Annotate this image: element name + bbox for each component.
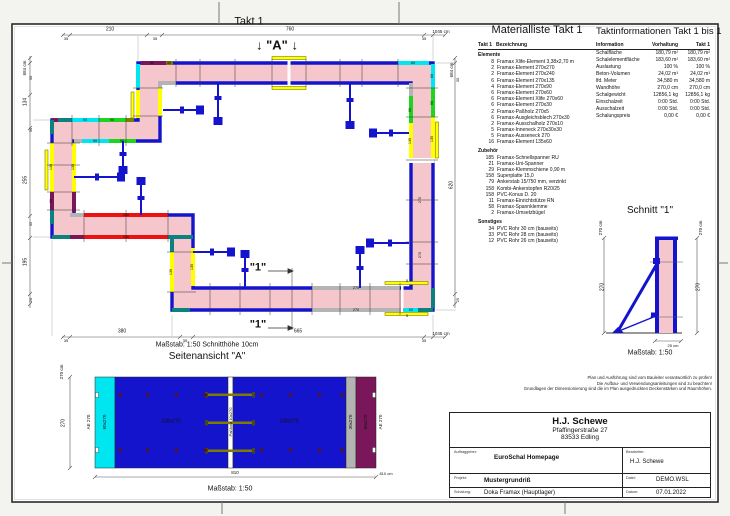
project-value: Mustergrundriß	[484, 477, 531, 484]
elevation-label: 810	[231, 471, 239, 476]
element-size-label: 270	[353, 309, 359, 313]
material-list-col-desc: Bezeichnung	[496, 42, 527, 48]
elevation-label: 30x270	[349, 415, 354, 430]
dimension-label: 35	[64, 37, 68, 41]
takt-info-title: Taktinformationen Takt 1 bis 1	[596, 26, 710, 37]
element-size-label: 135	[170, 269, 174, 275]
cut-marker-1-bottom: "1"	[250, 320, 267, 331]
dimension-label: 30	[29, 76, 33, 80]
element-size-label: 135	[431, 136, 435, 142]
takt-info-row: lfd. Meter34,580 m34,580 m	[596, 78, 710, 85]
element-size-label: 270	[353, 287, 359, 291]
plan-title: Takt 1	[234, 17, 263, 28]
side-view-title: Seitenansicht "A"	[169, 352, 246, 362]
dimension-label: 684 cm	[450, 63, 455, 78]
takt-info-row: Einschalzeit0:00 Std.0:00 Std.	[596, 99, 710, 106]
element-size-label: 135	[72, 164, 76, 170]
element-size-label: 135	[50, 164, 54, 170]
editor-label: Bearbeiter:	[626, 450, 645, 454]
section-dim-label: 270	[601, 283, 606, 291]
date-label: Datum:	[626, 490, 638, 494]
takt-info-row: Schalgewicht12856,1 kg12856,1 kg	[596, 92, 710, 99]
takt-info-header: Information Vorhaltung Takt 1	[596, 42, 710, 50]
dimension-label: 1045 cm	[432, 332, 449, 337]
element-size-label: 270	[419, 197, 423, 203]
element-size-label: 60	[431, 74, 435, 78]
dimension-label: 665	[294, 330, 302, 335]
dimension-label: 380	[118, 330, 126, 335]
plan-scale-note: Maßstab: 1:50 Schnitthöhe 10cm	[156, 342, 259, 349]
dimension-label: 760	[286, 28, 294, 33]
dimension-label: 684 cm	[23, 61, 28, 76]
element-size-label: 135	[191, 264, 195, 270]
date-value: 07.01.2022	[656, 490, 686, 496]
project-label: Projekt:	[454, 476, 467, 480]
dimension-label: 35	[422, 339, 426, 343]
client-label: Auftraggeber:	[454, 450, 477, 454]
element-size-label: 240	[123, 236, 129, 240]
formwork-value: Doka Framax (Hauptlager)	[484, 490, 555, 496]
dimension-label: 195	[24, 258, 29, 266]
editor-value: H.J. Schewe	[630, 459, 664, 465]
company-street: Pfaffingerstraße 27	[450, 427, 710, 434]
dimension-label: 20	[29, 298, 33, 302]
elevation-label: Paßholz 10x270	[229, 408, 233, 437]
material-list-header: Takt 1 Bezeichnung	[478, 42, 596, 50]
title-block: H.J. Schewe Pfaffingerstraße 27 83533 Ed…	[449, 412, 711, 498]
dimension-label: 35	[29, 222, 33, 226]
takt-info-row: Beton-Volumen24,02 m³24,02 m³	[596, 71, 710, 78]
element-size-label: 60	[50, 199, 54, 203]
cut-marker-1-top: "1"	[250, 263, 267, 274]
elevation-label: 270 cm	[60, 365, 65, 380]
dimension-label: 210	[106, 28, 114, 33]
elevation-label: 810 cm	[379, 472, 392, 476]
element-size-label: 135	[409, 138, 413, 144]
element-size-label: 30	[167, 62, 171, 66]
takt-info-col-vorhaltung: Vorhaltung	[642, 42, 678, 49]
element-size-label: 90	[93, 140, 97, 144]
takt-info-row: Schalfläche180,79 m²180,79 m²	[596, 50, 710, 57]
element-size-label: 5	[406, 314, 408, 318]
material-list-title: Materialliste Takt 1	[478, 24, 596, 36]
dimension-label: 255	[24, 176, 29, 184]
takt-info-row: Schalelementfläche183,60 m²183,60 m²	[596, 57, 710, 64]
elevation-label: 338x270	[161, 420, 180, 425]
section-dim-label: 270 cm	[699, 221, 704, 236]
dimension-label: 25	[456, 298, 460, 302]
dimension-label: 620	[450, 181, 455, 189]
side-view	[68, 375, 378, 479]
dimension-label: 134	[24, 98, 29, 106]
section-title: Schnitt "1"	[627, 206, 673, 216]
element-size-label: 90	[409, 108, 413, 112]
element-size-label: 5	[406, 279, 408, 283]
takt-info-col-information: Information	[596, 42, 642, 49]
section-dim-label: 270 cm	[599, 221, 604, 236]
dimension-label: 30	[29, 128, 33, 132]
formwork-label: Schalung:	[454, 490, 471, 494]
elevation-label: 270	[62, 419, 67, 427]
element-size-label: 90	[431, 101, 435, 105]
material-list-section: Elemente	[478, 52, 596, 58]
elevation-label: 338x270	[279, 420, 298, 425]
company-city: 83533 Edling	[450, 434, 710, 441]
material-list-item: 12PVC Rohr 26 cm (bauseits)	[478, 238, 596, 244]
element-size-label: 60	[411, 62, 415, 66]
material-list-item: 2Framax-Umsetzbügel	[478, 210, 596, 216]
material-list: Materialliste Takt 1 Takt 1 Bezeichnung …	[478, 24, 596, 244]
element-size-label: 90	[110, 119, 114, 123]
material-list-section: Zubehör	[478, 148, 596, 154]
takt-info-row: Auslastung100 %100 %	[596, 64, 710, 71]
section-marker-a: ↓ "A" ↓	[256, 39, 298, 52]
material-list-col-qty: Takt 1	[478, 42, 496, 48]
takt-info-col-takt1: Takt 1	[678, 42, 710, 49]
material-list-section: Sonstiges	[478, 219, 596, 225]
takt-info-row: Wandhöhe270,0 cm270,0 cm	[596, 85, 710, 92]
section-dim-label: 25 cm	[668, 344, 679, 348]
element-size-label: 240	[123, 214, 129, 218]
disclaimer-line-3: Grundlagen der Dimensionierung sind die …	[450, 386, 712, 392]
elevation-label: AE 270	[87, 415, 92, 430]
element-size-label: 270	[419, 252, 423, 258]
file-value: DEMO.WSL	[656, 477, 689, 483]
dimension-label: 35	[153, 37, 157, 41]
plan-sheet: Takt 1 ↓ "A" ↓ "1" "1" Maßstab: 1:50 Sch…	[0, 0, 730, 516]
takt-info-row: Ausschalzeit0:00 Std.0:00 Std.	[596, 106, 710, 113]
section-scale: Maßstab: 1:50	[628, 350, 673, 357]
dimension-label: 1045 cm	[432, 30, 449, 35]
element-size-label: 60	[150, 62, 154, 66]
section-dim-label: 270	[697, 283, 702, 291]
dimension-label: 35	[183, 339, 187, 343]
company-name: H.J. Schewe	[450, 416, 710, 427]
file-label: Datei:	[626, 476, 636, 480]
client-value: EuroSchal Homepage	[494, 454, 559, 461]
elevation-label: 60x270	[103, 415, 108, 430]
material-list-item: 16Framax-Element 135x60	[478, 139, 596, 145]
element-size-label: 90	[83, 119, 87, 123]
disclaimer-text: Plan und Ausführung sind vom Bauleiter v…	[450, 375, 712, 392]
dimension-label: 30	[456, 78, 460, 82]
side-view-scale: Maßstab: 1:50	[208, 486, 253, 493]
elevation-label: AE 270	[379, 415, 384, 430]
elevation-label: 60x270	[364, 415, 369, 430]
takt-info-row: Schalungspreis0,00 €0,00 €	[596, 113, 710, 120]
takt-info-table: Taktinformationen Takt 1 bis 1 Informati…	[596, 26, 710, 120]
element-size-label: 90	[120, 140, 124, 144]
element-size-label: 60	[409, 309, 413, 313]
dimension-label: 35	[422, 37, 426, 41]
dimension-label: 35	[64, 339, 68, 343]
